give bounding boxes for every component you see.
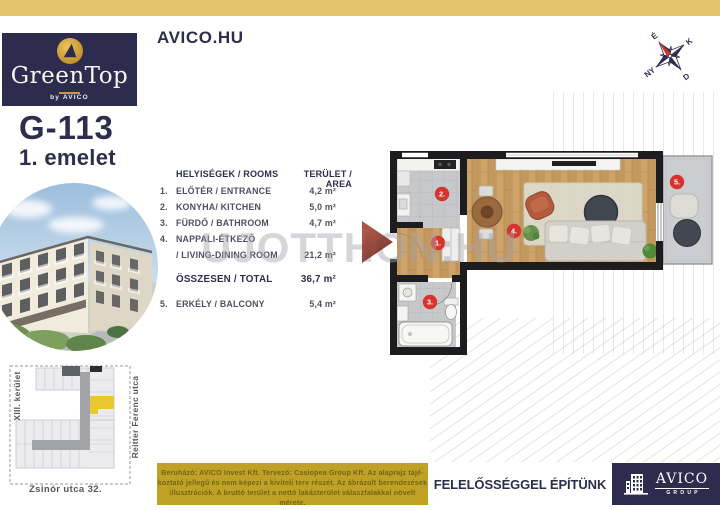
unit-floor: 1. emelet: [19, 145, 116, 171]
plan-label-3: 3.: [423, 295, 437, 309]
website-label: AVICO.HU: [157, 28, 244, 48]
greentop-logo: GreenTop by AVICO: [2, 33, 137, 106]
svg-text:3.: 3.: [427, 298, 433, 307]
disclaimer-line: illusztrációk. A bruttó terület a nettó …: [157, 489, 428, 509]
top-gold-bar: [0, 0, 720, 16]
slogan-text: FELELŐSSÉGGEL ÉPÍTÜNK: [428, 463, 612, 505]
greentop-byline: by AVICO: [2, 94, 137, 101]
svg-text:2.: 2.: [439, 190, 445, 199]
table-row: 5. ERKÉLY / BALCONY 5,4 m²: [160, 299, 352, 315]
compass-rose-icon: É K D NY: [628, 18, 712, 97]
site-plan-address-label: Zsinór utca 32.: [18, 484, 113, 495]
building-photo: [0, 183, 158, 351]
plan-balcony-chair: [670, 194, 698, 218]
table-header: HELYISÉGEK / ROOMS TERÜLET / AREA: [160, 169, 352, 186]
avico-building-icon: [623, 471, 649, 497]
flyer-page: GreenTop by AVICO AVICO.HU G-113 1. emel…: [0, 0, 720, 510]
unit-id: G-113: [19, 109, 114, 147]
table-row: 1. ELŐTÉR / ENTRANCE 4,2 m²: [160, 186, 352, 202]
greentop-wordmark: GreenTop: [2, 63, 137, 89]
avico-group-label: GROUP: [666, 490, 700, 496]
plan-label-2: 2.: [435, 187, 449, 201]
svg-text:5.: 5.: [674, 178, 680, 187]
compass-west-label: NY: [643, 65, 658, 79]
plan-balcony-table: [674, 220, 701, 247]
compass-south-label: D: [681, 71, 691, 82]
greentop-sail-icon: [57, 38, 83, 64]
plan-label-5: 5.: [670, 175, 684, 189]
header-rooms: HELYISÉGEK / ROOMS: [176, 169, 280, 186]
avico-rule: [655, 488, 709, 489]
header-area: TERÜLET / AREA: [280, 169, 352, 186]
table-total-row: ÖSSZESEN / TOTAL 36,7 m²: [160, 274, 352, 290]
plan-balcony: [663, 156, 712, 264]
avico-group-logo: AVICO GROUP: [612, 463, 720, 505]
site-plan-corridor: [80, 372, 90, 446]
site-plan-street-label: Reitter Ferenc utca: [130, 366, 140, 468]
compass-north-label: É: [650, 31, 660, 42]
disclaimer-bar: Beruházó: AVICO Invest Kft. Tervező: Cas…: [157, 463, 428, 505]
disclaimer-line: koztató jellegű és nem képezi a kiviteli…: [157, 479, 428, 489]
avico-wordmark: AVICO: [656, 472, 708, 486]
compass-east-label: K: [684, 36, 694, 47]
site-plan-district-label: XIII. kerület: [12, 360, 22, 432]
disclaimer-line: Beruházó: AVICO Invest Kft. Tervező: Cas…: [157, 469, 428, 479]
table-row: 2. KONYHA/ KITCHEN 5,0 m²: [160, 202, 352, 218]
